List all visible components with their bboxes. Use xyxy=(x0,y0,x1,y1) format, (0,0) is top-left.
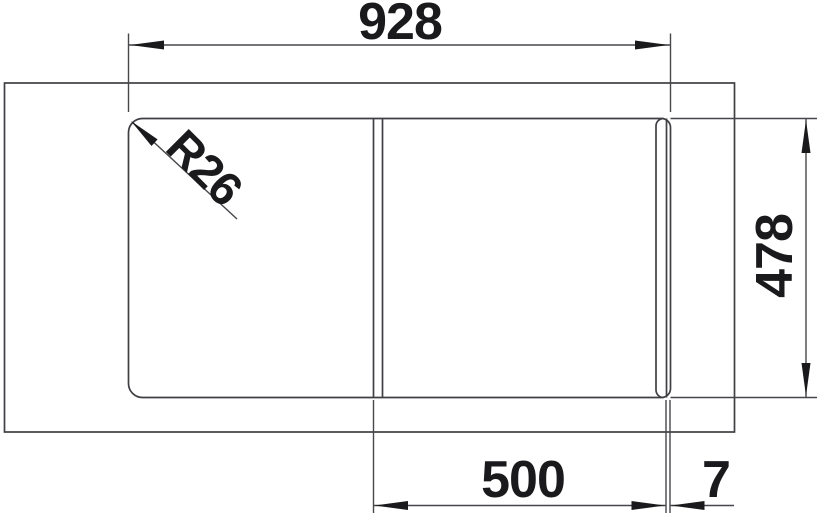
dimension-lines xyxy=(129,34,818,514)
bowl-right-edge-line xyxy=(656,119,664,398)
countertop-outline xyxy=(5,83,735,432)
part-geometry xyxy=(5,83,735,432)
technical-drawing-canvas: 928 478 500 7 R26 xyxy=(0,0,819,517)
depth-bottom-arrow-icon xyxy=(802,363,811,396)
edge-gap-label: 7 xyxy=(702,451,730,509)
bowl-width-label: 500 xyxy=(481,451,565,509)
bowl-left-arrow-icon xyxy=(375,501,409,510)
bowl-right-arrow-icon xyxy=(632,501,666,510)
overall-width-label: 928 xyxy=(358,0,442,51)
sink-dimension-drawing: 928 478 500 7 R26 xyxy=(0,0,819,517)
dimension-arrows xyxy=(130,41,811,511)
depth-label: 478 xyxy=(746,214,804,298)
depth-top-arrow-icon xyxy=(802,120,811,153)
width-left-arrow-icon xyxy=(130,41,164,50)
corner-radius-label: R26 xyxy=(157,119,253,215)
edge-gap-arrow-icon xyxy=(671,501,705,510)
width-right-arrow-icon xyxy=(635,41,669,50)
radius-leader-arrow-icon xyxy=(131,121,158,146)
